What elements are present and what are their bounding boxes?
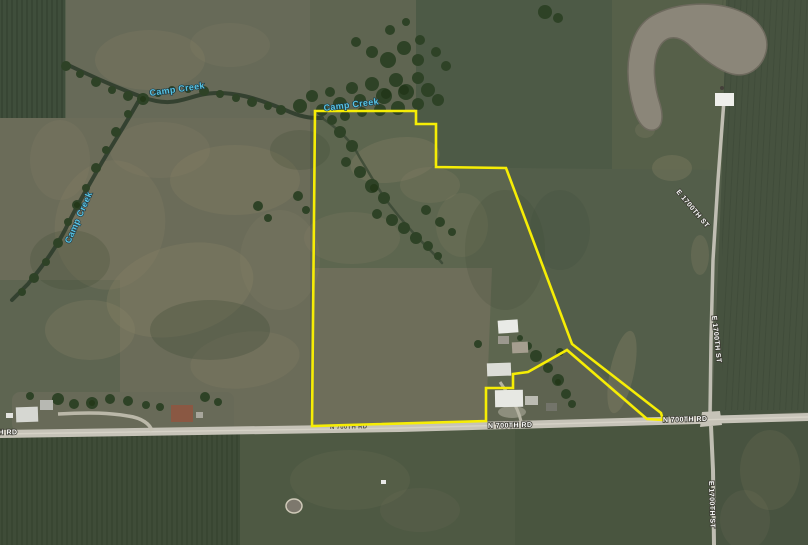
map-canvas[interactable]: N 700TH RD N 700TH RD N 700TH RD E 1700T… — [0, 0, 808, 545]
left-farm-house — [16, 407, 39, 423]
road-label-n700th-right2: N 700TH RD — [663, 416, 708, 424]
small-pond — [286, 499, 302, 513]
center-farm-barn — [495, 390, 523, 407]
center-farm-shed — [487, 363, 511, 377]
small-structure — [381, 480, 386, 484]
center-farm-house — [512, 342, 529, 354]
aerial-map-view[interactable]: N 700TH RD N 700TH RD N 700TH RD E 1700T… — [0, 0, 808, 545]
road-label-n700th-mid: N 700TH RD — [488, 422, 533, 430]
center-farm-building-1 — [498, 319, 519, 333]
road-label-n700th-left: N 700TH RD — [0, 429, 18, 437]
left-farm-barn — [171, 405, 193, 422]
pond-shed — [715, 93, 734, 106]
left-farm-shed — [40, 400, 53, 410]
